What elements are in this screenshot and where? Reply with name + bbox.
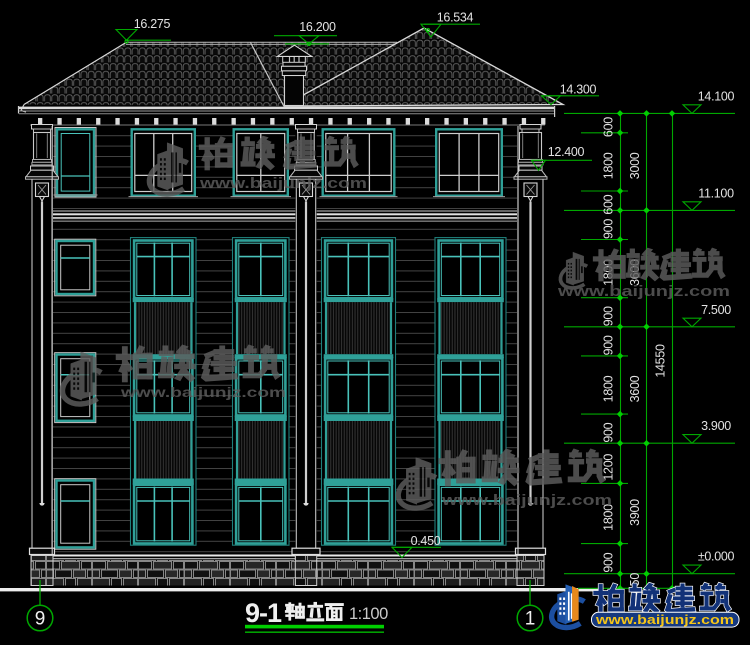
svg-text:14.100: 14.100 xyxy=(698,89,735,103)
svg-text:16.200: 16.200 xyxy=(299,20,336,34)
svg-text:www.baijunjz.com: www.baijunjz.com xyxy=(199,176,367,192)
svg-text:7.500: 7.500 xyxy=(701,303,731,317)
svg-text:3600: 3600 xyxy=(628,375,642,402)
svg-text:0.450: 0.450 xyxy=(411,534,441,548)
svg-text:www.baijunjz.com: www.baijunjz.com xyxy=(595,613,734,627)
svg-text:11.100: 11.100 xyxy=(698,186,734,200)
svg-text:900: 900 xyxy=(602,552,616,572)
svg-text:1800: 1800 xyxy=(602,152,616,179)
svg-text:14550: 14550 xyxy=(654,344,668,378)
svg-text:12.400: 12.400 xyxy=(548,145,585,159)
svg-text:16.275: 16.275 xyxy=(134,17,171,31)
svg-text:3000: 3000 xyxy=(628,152,642,179)
svg-text:1: 1 xyxy=(525,609,536,630)
svg-text:9: 9 xyxy=(35,609,46,630)
svg-text:900: 900 xyxy=(602,335,616,355)
svg-text:600: 600 xyxy=(602,194,616,214)
svg-text:900: 900 xyxy=(602,306,616,326)
svg-text:www.baijunjz.com: www.baijunjz.com xyxy=(441,493,612,509)
svg-text:9-1: 9-1 xyxy=(245,598,282,628)
svg-text:900: 900 xyxy=(602,219,616,239)
svg-text:1:100: 1:100 xyxy=(349,605,388,623)
svg-text:16.534: 16.534 xyxy=(437,11,474,25)
svg-text:900: 900 xyxy=(602,422,616,442)
svg-text:14.300: 14.300 xyxy=(560,83,597,97)
svg-text:±0.000: ±0.000 xyxy=(698,550,735,564)
svg-text:1200: 1200 xyxy=(602,454,616,481)
svg-text:3.900: 3.900 xyxy=(701,419,731,433)
svg-text:www.baijunjz.com: www.baijunjz.com xyxy=(557,284,730,300)
svg-text:www.baijunjz.com: www.baijunjz.com xyxy=(120,384,286,400)
svg-text:3900: 3900 xyxy=(628,499,642,526)
svg-text:600: 600 xyxy=(602,117,616,137)
svg-text:1800: 1800 xyxy=(602,375,616,402)
